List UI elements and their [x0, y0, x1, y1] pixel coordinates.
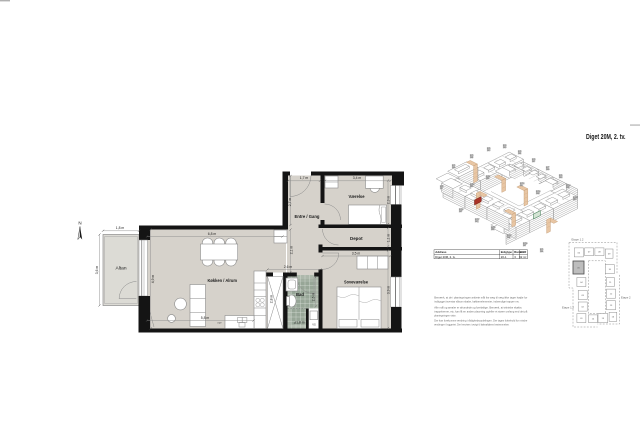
- svg-text:2,3 m: 2,3 m: [387, 196, 391, 205]
- svg-text:BBR: BBR: [520, 250, 526, 254]
- svg-text:Address: Address: [435, 250, 447, 254]
- svg-text:Boligtype: Boligtype: [501, 250, 512, 254]
- svg-text:Køkken / Alrum: Køkken / Alrum: [208, 278, 238, 284]
- svg-text:Depot: Depot: [350, 236, 363, 242]
- svg-text:Diget 20M, 2. tv.: Diget 20M, 2. tv.: [586, 132, 626, 141]
- svg-text:2,7 m: 2,7 m: [288, 198, 292, 207]
- svg-text:3,4 m: 3,4 m: [353, 176, 362, 180]
- svg-text:1,1 m: 1,1 m: [387, 234, 391, 243]
- svg-text:indbygget inventar såsom skabe: indbygget inventar såsom skabe, køkkenel…: [434, 300, 519, 304]
- svg-text:Diget 20M, 2. tv.: Diget 20M, 2. tv.: [435, 255, 455, 259]
- svg-text:20L: 20L: [520, 185, 523, 187]
- svg-text:Altan: Altan: [116, 266, 127, 272]
- svg-text:20O: 20O: [573, 199, 577, 201]
- svg-text:2,6 m: 2,6 m: [312, 293, 316, 302]
- svg-text:Etape 2: Etape 2: [621, 296, 631, 300]
- svg-text:Etape 1.2: Etape 1.2: [562, 306, 574, 310]
- svg-text:Etape 1.2: Etape 1.2: [572, 238, 584, 242]
- svg-text:2,1 m: 2,1 m: [290, 246, 294, 255]
- svg-text:ændringer i byggeriet. Der hen: ændringer i byggeriet. Der henvises i øv…: [434, 323, 509, 327]
- svg-text:plantegningen viste.: plantegningen viste.: [434, 314, 456, 318]
- svg-text:⊿1,8 m: ⊿1,8 m: [293, 321, 304, 325]
- svg-text:6,8 m: 6,8 m: [208, 232, 217, 236]
- svg-text:1,8 m: 1,8 m: [116, 226, 125, 230]
- svg-text:Bad: Bad: [296, 292, 304, 298]
- svg-text:Værelse: Værelse: [349, 194, 365, 200]
- svg-text:20G: 20G: [546, 169, 550, 171]
- svg-text:4,9 m: 4,9 m: [151, 275, 155, 284]
- svg-text:2,6 m: 2,6 m: [284, 265, 293, 269]
- svg-text:Entre / Gang: Entre / Gang: [295, 214, 320, 220]
- svg-text:20J: 20J: [470, 186, 473, 188]
- svg-text:3,6 m: 3,6 m: [95, 266, 99, 275]
- svg-text:Soveværelse: Soveværelse: [344, 280, 368, 286]
- svg-text:2,8 m: 2,8 m: [270, 295, 274, 304]
- svg-text:3,5 m: 3,5 m: [352, 251, 361, 255]
- svg-text:20Q: 20Q: [475, 221, 479, 223]
- svg-text:1,7 m: 1,7 m: [300, 176, 309, 180]
- svg-text:20M: 20M: [536, 193, 540, 195]
- svg-text:5,8 m: 5,8 m: [201, 316, 210, 320]
- svg-text:N: N: [78, 221, 81, 226]
- svg-text:3,9 m: 3,9 m: [387, 286, 391, 295]
- svg-text:92 m²: 92 m²: [519, 255, 526, 259]
- svg-text:opv: opv: [217, 322, 222, 325]
- svg-text:20-1: 20-1: [501, 255, 507, 259]
- svg-text:VS: VS: [312, 323, 316, 327]
